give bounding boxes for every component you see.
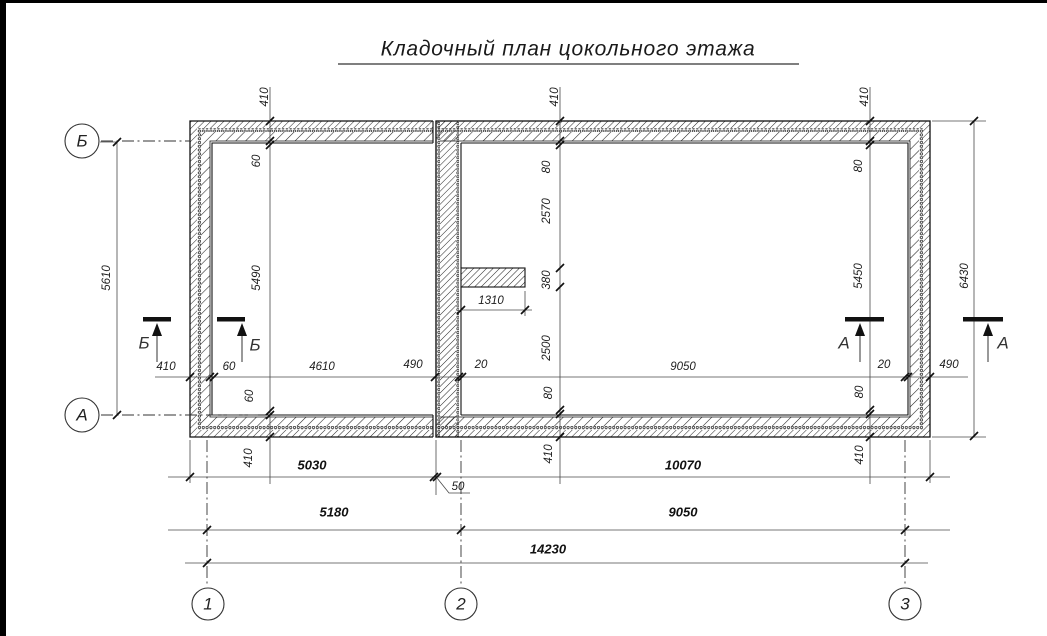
drawing-sheet: Кладочный план цокольного этажа — [0, 0, 1047, 636]
dimension-labels: 410 410 410 5610 6430 60 5490 60 410 80 … — [101, 87, 971, 557]
dim-label: 1310 — [478, 295, 504, 307]
section-mark-label: А — [996, 333, 1008, 352]
dim-label: 80 — [541, 160, 553, 173]
dim-label: 410 — [543, 444, 555, 464]
dim-label: 9050 — [670, 361, 696, 373]
dim-label: 5180 — [320, 504, 350, 519]
dim-label: 5030 — [298, 457, 328, 472]
dim-label: 80 — [854, 385, 866, 398]
dim-label: 5610 — [101, 265, 113, 291]
expansion-joint-gap — [434, 122, 436, 436]
dim-label: 380 — [541, 270, 553, 290]
dim-label: 60 — [251, 154, 263, 167]
dim-label: 4610 — [309, 361, 335, 373]
dim-label: 60 — [223, 361, 236, 373]
dim-label: 9050 — [669, 504, 699, 519]
dim-label: 410 — [854, 445, 866, 465]
dim-label: 80 — [853, 159, 865, 172]
axis-bubble-label: Б — [76, 131, 87, 150]
dim-label: 14230 — [530, 541, 567, 556]
dim-label: 2500 — [541, 335, 553, 362]
dim-label: 410 — [243, 448, 255, 468]
axis-bubble-label: 3 — [900, 594, 910, 613]
dim-label: 490 — [403, 359, 423, 371]
dim-label: 20 — [474, 359, 488, 371]
axis-bubble-label: А — [75, 405, 87, 424]
dim-label: 2570 — [541, 198, 553, 225]
floor-plan-drawing: Кладочный план цокольного этажа — [0, 0, 1047, 636]
section-mark-label: А — [837, 333, 849, 352]
dim-label: 80 — [543, 386, 555, 399]
sheet-top-border — [0, 0, 1047, 3]
dim-label: 410 — [156, 361, 176, 373]
section-marks: Б Б А А — [138, 317, 1008, 362]
sheet-left-border — [0, 0, 6, 636]
dim-label: 6430 — [959, 263, 971, 289]
dim-label: 410 — [859, 87, 871, 107]
dim-label: 5490 — [251, 265, 263, 291]
dim-label: 410 — [259, 87, 271, 107]
axis-bubble-label: 2 — [455, 594, 466, 613]
dim-label: 10070 — [665, 457, 702, 472]
page-title: Кладочный план цокольного этажа — [381, 38, 756, 61]
dim-label: 410 — [549, 87, 561, 107]
dim-label: 50 — [452, 481, 465, 493]
dim-label: 490 — [939, 359, 959, 371]
dimension-lines — [100, 87, 986, 563]
section-mark-label: Б — [249, 335, 260, 354]
dim-label: 5450 — [853, 263, 865, 289]
dim-label: 60 — [244, 389, 256, 402]
axis-lines — [101, 141, 905, 587]
axis-bubble-label: 1 — [203, 594, 212, 613]
pilaster — [461, 268, 525, 287]
section-mark-label: Б — [138, 333, 149, 352]
dim-label: 20 — [877, 359, 891, 371]
